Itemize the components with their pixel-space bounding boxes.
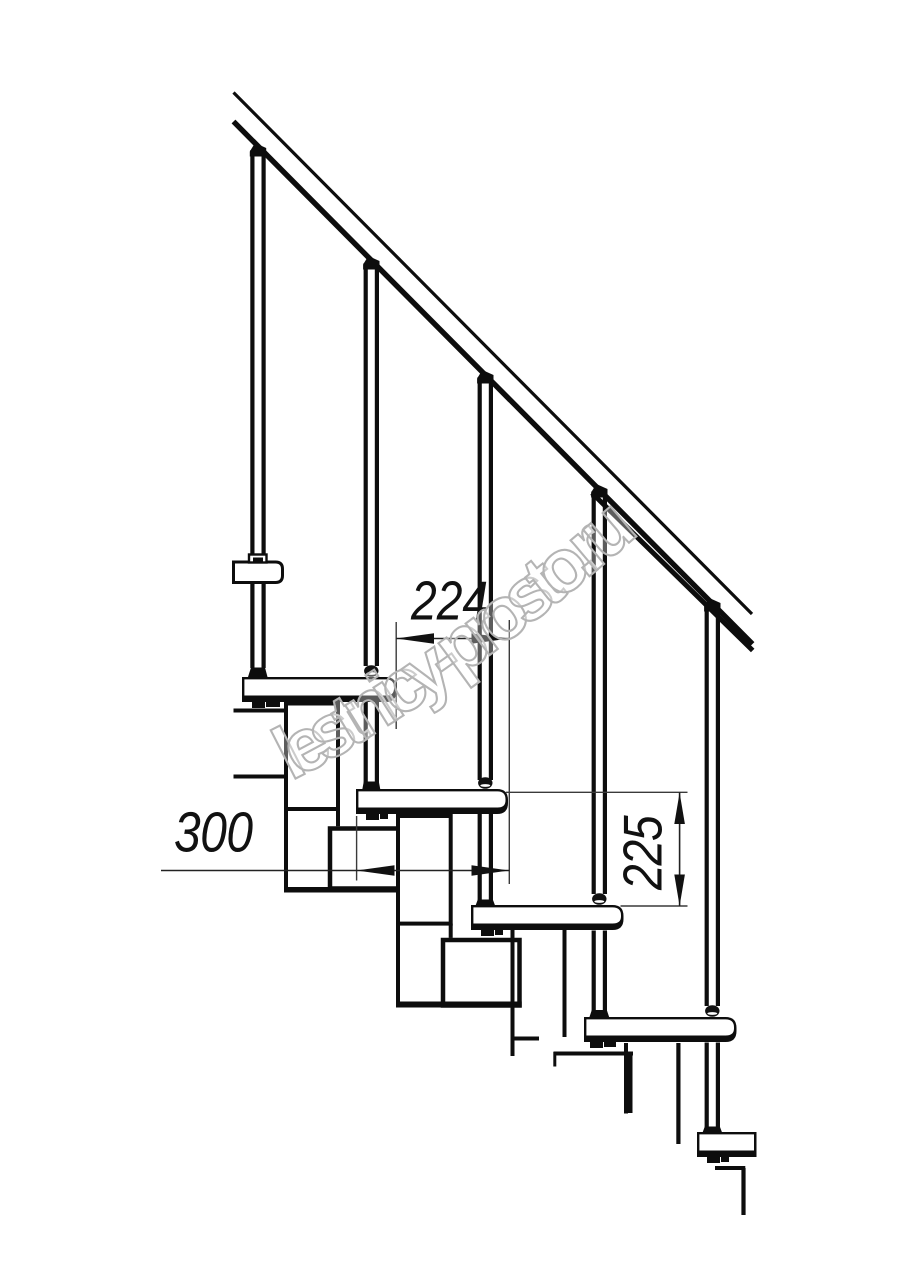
svg-text:225: 225 [612,815,674,891]
svg-text:lestnicy-prosto.ru: lestnicy-prosto.ru [260,485,647,796]
svg-text:300: 300 [174,801,253,865]
